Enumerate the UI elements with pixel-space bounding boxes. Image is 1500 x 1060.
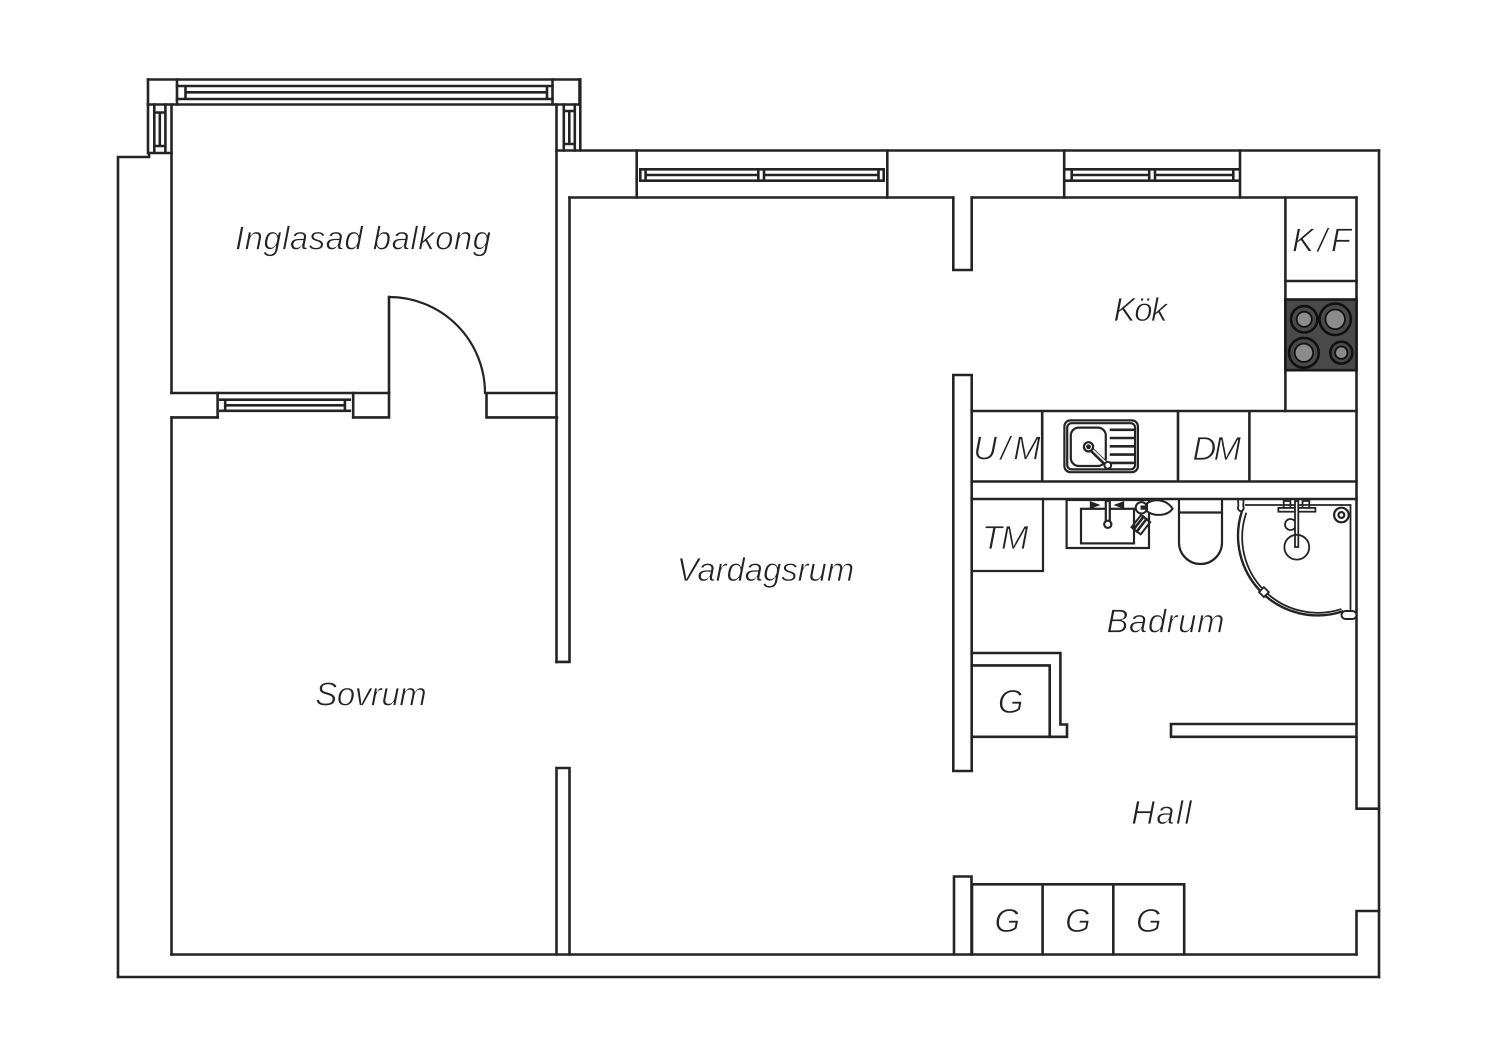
svg-text:DM: DM (1193, 430, 1242, 467)
svg-text:Sovrum: Sovrum (315, 676, 427, 713)
svg-text:G: G (1065, 902, 1091, 939)
svg-text:Hall: Hall (1131, 794, 1193, 831)
svg-text:U/M: U/M (973, 430, 1041, 467)
svg-text:G: G (994, 902, 1020, 939)
svg-text:TM: TM (982, 519, 1029, 556)
svg-text:Inglasad balkong: Inglasad balkong (235, 220, 492, 257)
svg-text:G: G (1136, 902, 1162, 939)
svg-text:Kök: Kök (1114, 291, 1170, 328)
svg-text:Vardagsrum: Vardagsrum (677, 551, 855, 588)
svg-text:Badrum: Badrum (1107, 603, 1225, 640)
svg-text:G: G (998, 683, 1024, 720)
svg-text:K/F: K/F (1292, 222, 1353, 259)
